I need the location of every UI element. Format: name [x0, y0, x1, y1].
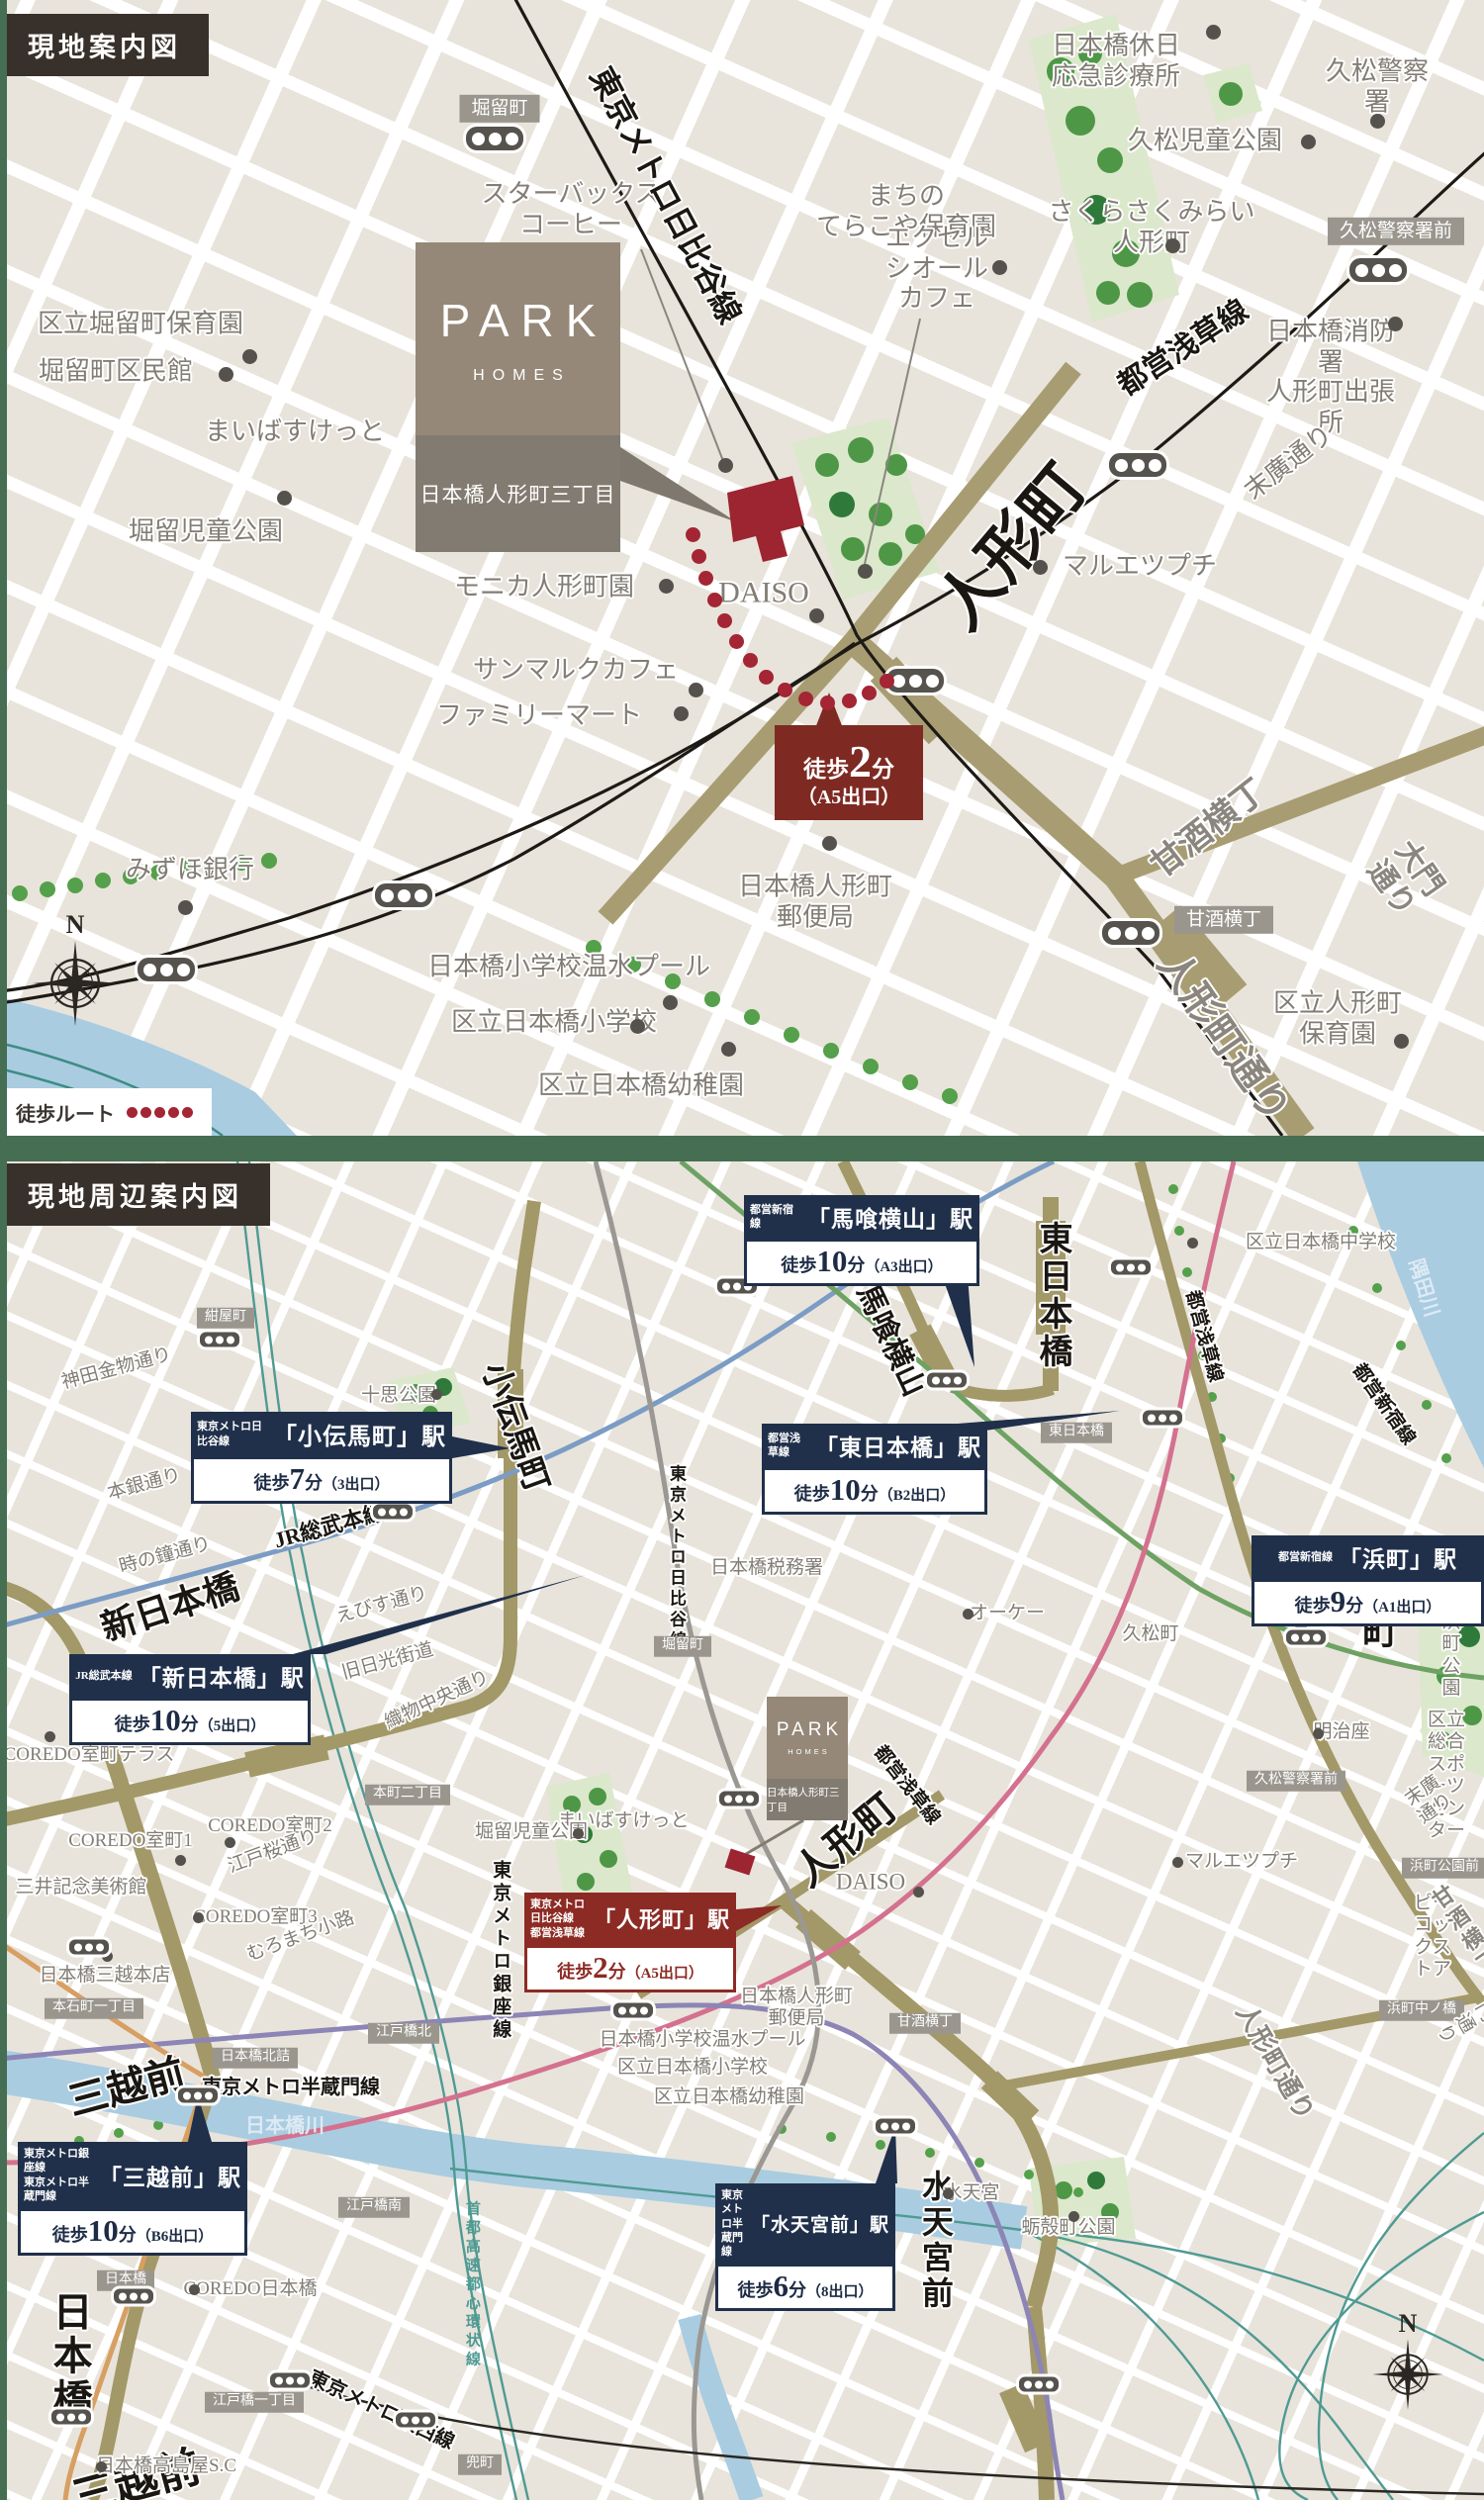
station-callout-header: 都営新宿線「馬喰横山」駅: [744, 1195, 979, 1239]
poi-dot: [175, 1855, 186, 1866]
map-label: 蛎殻町公園: [1021, 2217, 1115, 2239]
rail-line-name: JR総武本線: [75, 1669, 132, 1683]
walk-minutes: 10: [150, 1703, 181, 1737]
poi-dot: [242, 349, 257, 364]
map-label: 首都高速都心環状線: [462, 2201, 480, 2370]
poi-dot: [943, 2188, 954, 2199]
poi-dot: [277, 491, 292, 506]
station-callout-header: 東京メトロ銀座線東京メトロ半蔵門線「三越前」駅: [18, 2142, 247, 2208]
walk-word: 徒歩: [781, 1255, 816, 1275]
poi-dot: [659, 579, 674, 594]
walk-route-dot: [743, 653, 758, 668]
poi-dot: [1172, 1857, 1183, 1868]
train-station-icon: [463, 124, 526, 153]
map-label: 人形町通り: [1229, 1999, 1320, 2126]
compass-icon: [1370, 2337, 1445, 2412]
poi-dot: [721, 1042, 736, 1057]
map-label: 久松警察署前: [1247, 1771, 1345, 1792]
map-label: 時の鐘通り: [117, 1533, 214, 1579]
rail-line-names: 東京メトロ半蔵門線: [721, 2188, 745, 2259]
walk-time: 徒歩2分（A5出口）: [524, 1945, 736, 1992]
map-labels-layer: 日本橋休日 応急診療所久松警察署久松児童公園まちの てらこや保育園さくらさくみら…: [0, 0, 1484, 1136]
map-label: 隅田川: [1403, 1256, 1442, 1320]
poi-dot: [689, 683, 703, 697]
map-label: 区立日本橋中学校: [1246, 1232, 1396, 1253]
train-station-icon: [1016, 2374, 1062, 2395]
walk-minutes: 7: [289, 1461, 305, 1496]
walk-word: 徒歩: [557, 1962, 593, 1982]
map-label: 神田金物通り: [59, 1343, 174, 1394]
map-label: 堀留町: [459, 95, 539, 123]
walk-route-dot: [686, 527, 700, 542]
map-label: COREDO日本橋: [183, 2278, 317, 2300]
park-homes-brand: PARK HOMES: [416, 242, 620, 435]
exit-label: （3出口）: [323, 1477, 390, 1493]
walk-word: 徒歩: [253, 1473, 289, 1493]
area-guide-map: 馬喰横山東日本橋小伝馬町新日本橋人形町浜町三越前三越前日本橋水天宮前人形町通りJ…: [0, 1161, 1484, 2500]
walk-word: 徒歩: [52, 2225, 88, 2245]
poi-dot: [674, 706, 689, 721]
walk-time: 徒歩6分（8出口）: [715, 2264, 895, 2311]
station-callout: JR総武本線「新日本橋」駅徒歩10分（5出口）: [69, 1654, 311, 1745]
map-label: 日本橋小学校温水プール: [427, 953, 710, 983]
walk-minutes: 2: [593, 1950, 608, 1985]
train-station-icon: [135, 955, 198, 984]
poi-dot: [193, 1912, 204, 1923]
walk-time: 徒歩10分（B2出口）: [762, 1467, 987, 1515]
walk-time: 徒歩10分（5出口）: [69, 1698, 311, 1745]
map-label: 堀留町区民館: [39, 357, 193, 388]
map-label: さくらさくみらい 人形町: [1048, 197, 1254, 257]
walk-route-dot: [759, 670, 774, 685]
map-label: ファミリーマート: [436, 701, 642, 732]
train-station-icon: [393, 2410, 438, 2431]
map-label: 久松児童公園: [1128, 127, 1282, 157]
walk-route-dot: [842, 694, 857, 708]
map-label: 三越前: [63, 2050, 190, 2126]
exit-label: （5出口）: [199, 1718, 266, 1734]
map-label: 日本橋人形町 郵便局: [738, 872, 892, 932]
map-label: 堀留児童公園: [475, 1821, 588, 1843]
map-label: 本町二丁目: [365, 1785, 450, 1806]
map-label: 区立堀留町保育園: [38, 310, 243, 340]
minutes-unit: 分: [1345, 1596, 1363, 1616]
brand-park: PARK: [777, 1719, 842, 1741]
rail-line-name: 都営浅草線: [768, 1432, 809, 1460]
map-label: オーケー: [970, 1603, 1045, 1624]
walk-route-dot: [778, 683, 792, 697]
train-station-icon: [111, 2286, 156, 2307]
map-label: 織物中央通り: [382, 1667, 494, 1734]
station-name: 「馬喰横山」駅: [807, 1200, 974, 1234]
station-name: 「人形町」駅: [594, 1902, 730, 1934]
map-label: COREDO室町テラス: [4, 1744, 175, 1766]
rail-line-name: 都営新宿線: [1278, 1550, 1333, 1564]
train-station-icon: [1283, 1627, 1329, 1648]
poi-dot: [96, 2461, 107, 2472]
poi-dot: [663, 995, 678, 1010]
park-homes-logo-mini: PARK HOMES 日本橋人形町三丁目: [767, 1697, 848, 1820]
map-label: 本石町一丁目: [45, 1998, 143, 2019]
walk-time-callout: 徒歩2分 （A5出口）: [775, 725, 923, 820]
map-label: 区立日本橋幼稚園: [538, 1071, 744, 1102]
poi-dot: [189, 2284, 200, 2295]
map-label: 十思公園: [361, 1385, 436, 1407]
compass: N: [28, 912, 123, 1029]
walk-minutes: 9: [1331, 1584, 1346, 1619]
station-callout: 東京メトロ日比谷線「小伝馬町」駅徒歩7分（3出口）: [191, 1412, 452, 1504]
map-label: 本銀通り: [105, 1464, 183, 1505]
train-station-icon: [66, 1937, 112, 1958]
map-label: 東京メトロ日比谷線: [666, 1465, 686, 1652]
station-callout-header: 東京メトロ日比谷線「小伝馬町」駅: [191, 1412, 452, 1456]
map-label: マルエツプチ: [1063, 552, 1217, 583]
map-label: 甘酒横丁: [1144, 772, 1274, 885]
map-label: 東京メトロ銀座線: [489, 1860, 510, 2042]
section-divider: [0, 1136, 1484, 1161]
map-label: 区立日本橋小学校: [617, 2057, 768, 2079]
walk-route-dot: [698, 571, 713, 586]
map-page: 日本橋休日 応急診療所久松警察署久松児童公園まちの てらこや保育園さくらさくみら…: [0, 0, 1484, 2500]
map-label: 浜町公園前: [1402, 1858, 1484, 1879]
train-station-icon: [370, 1502, 416, 1523]
map-label: 日本橋高島屋S.C: [96, 2455, 236, 2477]
exit-label: （B2出口）: [879, 1488, 956, 1504]
station-callout-header: 都営浅草線「東日本橋」駅: [762, 1424, 987, 1467]
train-station-icon: [1108, 1257, 1154, 1278]
station-callout: 東京メトロ半蔵門線「水天宮前」駅徒歩6分（8出口）: [715, 2183, 895, 2311]
poi-dot: [573, 1828, 584, 1839]
rail-line-names: 都営浅草線: [768, 1432, 809, 1460]
map-label: えびす通り: [333, 1583, 430, 1628]
exit-label: （A3出口）: [865, 1259, 942, 1275]
poi-dot: [1187, 1238, 1198, 1249]
legend-label: 徒歩ルート: [16, 1098, 115, 1127]
map-label: 日本橋三越本店: [39, 1965, 170, 1987]
compass-n-label: N: [1399, 2311, 1418, 2337]
poi-dot: [431, 1389, 442, 1400]
map-label: マルエツプチ: [1185, 1851, 1298, 1873]
station-callout: 都営浅草線「東日本橋」駅徒歩10分（B2出口）: [762, 1424, 987, 1515]
station-callout-header: 東京メトロ日比谷線都営浅草線「人形町」駅: [524, 1893, 736, 1945]
station-callout-header: JR総武本線「新日本橋」駅: [69, 1654, 311, 1698]
map-label: 馬喰横山: [850, 1279, 932, 1402]
map-label: 紺屋町: [197, 1308, 254, 1329]
walk-route-legend: 徒歩ルート: [0, 1088, 212, 1136]
walk-route-dot: [692, 549, 706, 564]
exit-label: （8出口）: [806, 2284, 874, 2300]
walk-route-dot: [880, 674, 894, 689]
station-callout-header: 東京メトロ半蔵門線「水天宮前」駅: [715, 2183, 895, 2264]
map-label: 堀留町: [654, 1636, 711, 1657]
map-label: サンマルクカフェ: [473, 656, 679, 687]
train-station-icon: [372, 880, 435, 910]
map-label: 日本橋休日 応急診療所: [1052, 31, 1180, 91]
station-name: 「三越前」駅: [99, 2159, 241, 2192]
map-label: 日本橋消防署 人形町出張所: [1254, 318, 1408, 439]
map-label: 東日本橋: [1041, 1423, 1112, 1443]
exit-label: （B6出口）: [137, 2229, 214, 2245]
exit-label: （A5出口）: [626, 1966, 703, 1982]
rail-line-name: 東京メトロ日比谷線: [197, 1420, 267, 1448]
compass-icon: [30, 938, 121, 1029]
map-labels-layer: 馬喰横山東日本橋小伝馬町新日本橋人形町浜町三越前三越前日本橋水天宮前人形町通りJ…: [0, 1161, 1484, 2500]
train-station-icon: [1099, 918, 1162, 948]
station-name: 「小伝馬町」駅: [273, 1417, 446, 1451]
minutes-unit: 分: [861, 1484, 879, 1504]
compass-n-label: N: [66, 912, 85, 938]
poi-dot: [1313, 1728, 1324, 1739]
map-label: 都営新宿線: [1347, 1360, 1420, 1450]
rail-line-name: 都営浅草線: [530, 1926, 588, 1940]
station-name: 「水天宮前」駅: [751, 2210, 889, 2237]
map-label: 日本橋人形町 郵便局: [740, 1987, 853, 2031]
poi-dot: [1388, 317, 1403, 331]
walk-word: 徒歩: [1295, 1596, 1331, 1616]
map-label: エクセル シオール カフェ: [885, 224, 988, 315]
map-label: 区立人形町 保育園: [1273, 988, 1402, 1049]
walk-time: 徒歩10分（A3出口）: [744, 1239, 979, 1286]
map-label: 大門通り: [1353, 826, 1456, 931]
walk-word: 徒歩: [794, 1484, 830, 1504]
rail-line-name: 都営新宿線: [750, 1203, 801, 1232]
map-label: 久松警察署前: [1328, 218, 1464, 245]
map-label: DAISO: [836, 1868, 905, 1895]
walk-time: 徒歩9分（A1出口）: [1252, 1579, 1484, 1626]
map-label: 東日本橋: [1032, 1221, 1071, 1371]
map-label: まいばすけっと: [205, 417, 385, 448]
map-label: 久松町: [1122, 1623, 1178, 1645]
train-station-icon: [610, 2000, 656, 2021]
map-label: モニカ人形町園: [454, 573, 634, 603]
train-station-icon: [1140, 1408, 1185, 1429]
train-station-icon: [716, 1789, 762, 1809]
map-label: DAISO: [718, 575, 809, 609]
map-label: 新日本橋: [96, 1566, 244, 1650]
map-title-badge: 現地案内図: [0, 14, 209, 76]
walk-route-dot: [729, 634, 744, 649]
poi-dot: [219, 367, 233, 382]
walk-minutes: 10: [816, 1244, 847, 1278]
map-label: 日本橋川: [245, 2115, 325, 2139]
walk-minutes: 6: [773, 2269, 788, 2303]
train-station-icon: [175, 2085, 221, 2106]
map-label: 浜町中ノ橋: [1379, 2000, 1464, 2021]
brand-homes: HOMES: [473, 367, 571, 385]
rail-line-name: 東京メトロ半蔵門線: [721, 2188, 745, 2259]
poi-dot: [1394, 1034, 1409, 1049]
station-name: 「浜町」駅: [1339, 1540, 1457, 1574]
minutes-unit: 分: [181, 1714, 199, 1734]
station-callout: 東京メトロ日比谷線都営浅草線「人形町」駅徒歩2分（A5出口）: [524, 1893, 736, 1992]
rail-line-names: 東京メトロ銀座線東京メトロ半蔵門線: [24, 2147, 93, 2203]
park-homes-logo: PARK HOMES 日本橋人形町三丁目: [416, 242, 620, 552]
poi-dot: [1033, 560, 1048, 575]
map-label: 三井記念美術館: [15, 1877, 146, 1898]
train-station-icon: [197, 1330, 242, 1350]
minutes-unit: 分: [608, 1962, 626, 1982]
rail-line-name: 東京メトロ半蔵門線: [24, 2176, 93, 2204]
station-callout: 都営新宿線「馬喰横山」駅徒歩10分（A3出口）: [744, 1195, 979, 1286]
map-label: スターバックス コーヒー: [482, 179, 661, 239]
legend-dots: [127, 1101, 196, 1124]
map-label: 都営浅草線: [1111, 293, 1254, 403]
poi-dot: [809, 608, 824, 623]
property-address: 日本橋人形町三丁目: [416, 435, 620, 552]
walk-time: 徒歩2分: [803, 737, 894, 787]
rail-line-names: 東京メトロ日比谷線: [197, 1420, 267, 1448]
map-label: 兜町: [458, 2454, 502, 2475]
walk-word: 徒歩: [115, 1714, 150, 1734]
walk-route-dot: [798, 692, 813, 706]
map-label: 江戸橋一丁目: [205, 2392, 304, 2413]
map-label: 日本橋: [46, 2291, 92, 2422]
poi-dot: [1165, 238, 1180, 253]
map-label: 区立日本橋幼稚園: [654, 2086, 804, 2108]
exit-label: （A1出口）: [1363, 1600, 1440, 1616]
map-label: 区立日本橋小学校: [451, 1008, 657, 1039]
map-label: 甘酒横丁: [889, 2013, 961, 2034]
poi-dot: [630, 1019, 645, 1034]
rail-line-names: 東京メトロ日比谷線都営浅草線: [530, 1898, 588, 1940]
walk-word: 徒歩: [737, 2280, 773, 2300]
train-station-icon: [267, 2370, 313, 2391]
walk-route-dot: [707, 593, 722, 607]
poi-dot: [1301, 135, 1316, 149]
exit-label: （A5出口）: [797, 787, 900, 808]
map-label: 甘酒横丁: [1174, 906, 1273, 934]
map-label: 東京メトロ半蔵門線: [202, 2077, 380, 2100]
poi-dot: [1370, 114, 1385, 129]
poi-dot: [992, 260, 1007, 275]
poi-dot: [225, 1837, 235, 1848]
rail-line-name: 東京メトロ銀座線: [24, 2147, 93, 2176]
walk-time: 徒歩7分（3出口）: [191, 1456, 452, 1504]
walk-time: 徒歩10分（B6出口）: [18, 2208, 247, 2256]
brand-homes: HOMES: [788, 1747, 830, 1756]
map-label: みずほ銀行: [126, 856, 254, 886]
park-homes-brand: PARK HOMES: [767, 1697, 848, 1779]
train-station-icon: [924, 1370, 970, 1391]
walk-route-dot: [862, 686, 877, 700]
walk-route-dot: [820, 695, 835, 710]
map-label: 堀留児童公園: [129, 517, 283, 548]
poi-dot: [822, 836, 837, 851]
poi-dot: [1068, 2211, 1079, 2222]
map-label: 久松警察署: [1324, 56, 1431, 117]
map-label: 江戸橋南: [338, 2197, 410, 2218]
station-callout: 東京メトロ銀座線東京メトロ半蔵門線「三越前」駅徒歩10分（B6出口）: [18, 2142, 247, 2256]
rail-line-names: 都営新宿線: [750, 1203, 801, 1232]
map-label: 小伝馬町: [473, 1357, 556, 1498]
property-address: 日本橋人形町三丁目: [767, 1779, 848, 1820]
rail-line-names: 都営新宿線: [1278, 1550, 1333, 1564]
station-name: 「東日本橋」駅: [815, 1429, 981, 1462]
map-label: COREDO室町1: [68, 1830, 193, 1852]
poi-dot: [963, 1609, 974, 1620]
train-station-icon: [1106, 450, 1169, 480]
map-label: 人形町: [922, 450, 1101, 644]
map-label: 日本橋小学校温水プール: [599, 2029, 805, 2051]
train-station-icon: [48, 2407, 94, 2428]
walk-minutes: 10: [830, 1472, 861, 1507]
poi-dot: [858, 564, 873, 579]
poi-dot: [45, 1731, 55, 1742]
compass: N: [1368, 2311, 1447, 2412]
walk-route-dot: [717, 613, 732, 628]
walk-minutes: 10: [88, 2213, 119, 2248]
rail-line-name: 東京メトロ日比谷線: [530, 1898, 588, 1926]
rail-line-names: JR総武本線: [75, 1669, 132, 1683]
page-edge-bar: [0, 0, 7, 2500]
map-label: 旧日光街道: [339, 1639, 436, 1685]
minutes-unit: 分: [847, 1255, 865, 1275]
train-station-icon: [873, 2116, 918, 2137]
station-callout-header: 都営新宿線「浜町」駅: [1252, 1535, 1484, 1579]
map-label: 江戸橋北: [368, 2023, 439, 2044]
map-label: 日本橋北詰: [213, 2048, 298, 2069]
poi-dot: [1206, 25, 1221, 40]
station-callout: 都営新宿線「浜町」駅徒歩9分（A1出口）: [1252, 1535, 1484, 1626]
map-label: 日本橋税務署: [710, 1557, 823, 1579]
poi-dot: [913, 1887, 924, 1898]
map-title-badge: 現地周辺案内図: [0, 1163, 270, 1226]
brand-park: PARK: [440, 294, 608, 347]
train-station-icon: [1346, 255, 1410, 285]
station-name: 「新日本橋」駅: [139, 1659, 305, 1693]
minutes-unit: 分: [788, 2280, 806, 2300]
local-guide-map: 日本橋休日 応急診療所久松警察署久松児童公園まちの てらこや保育園さくらさくみら…: [0, 0, 1484, 1136]
poi-dot: [178, 900, 193, 915]
poi-dot: [718, 458, 733, 473]
minutes-unit: 分: [119, 2225, 137, 2245]
minutes-unit: 分: [305, 1473, 323, 1493]
map-label: 都営浅草線: [1180, 1288, 1226, 1385]
